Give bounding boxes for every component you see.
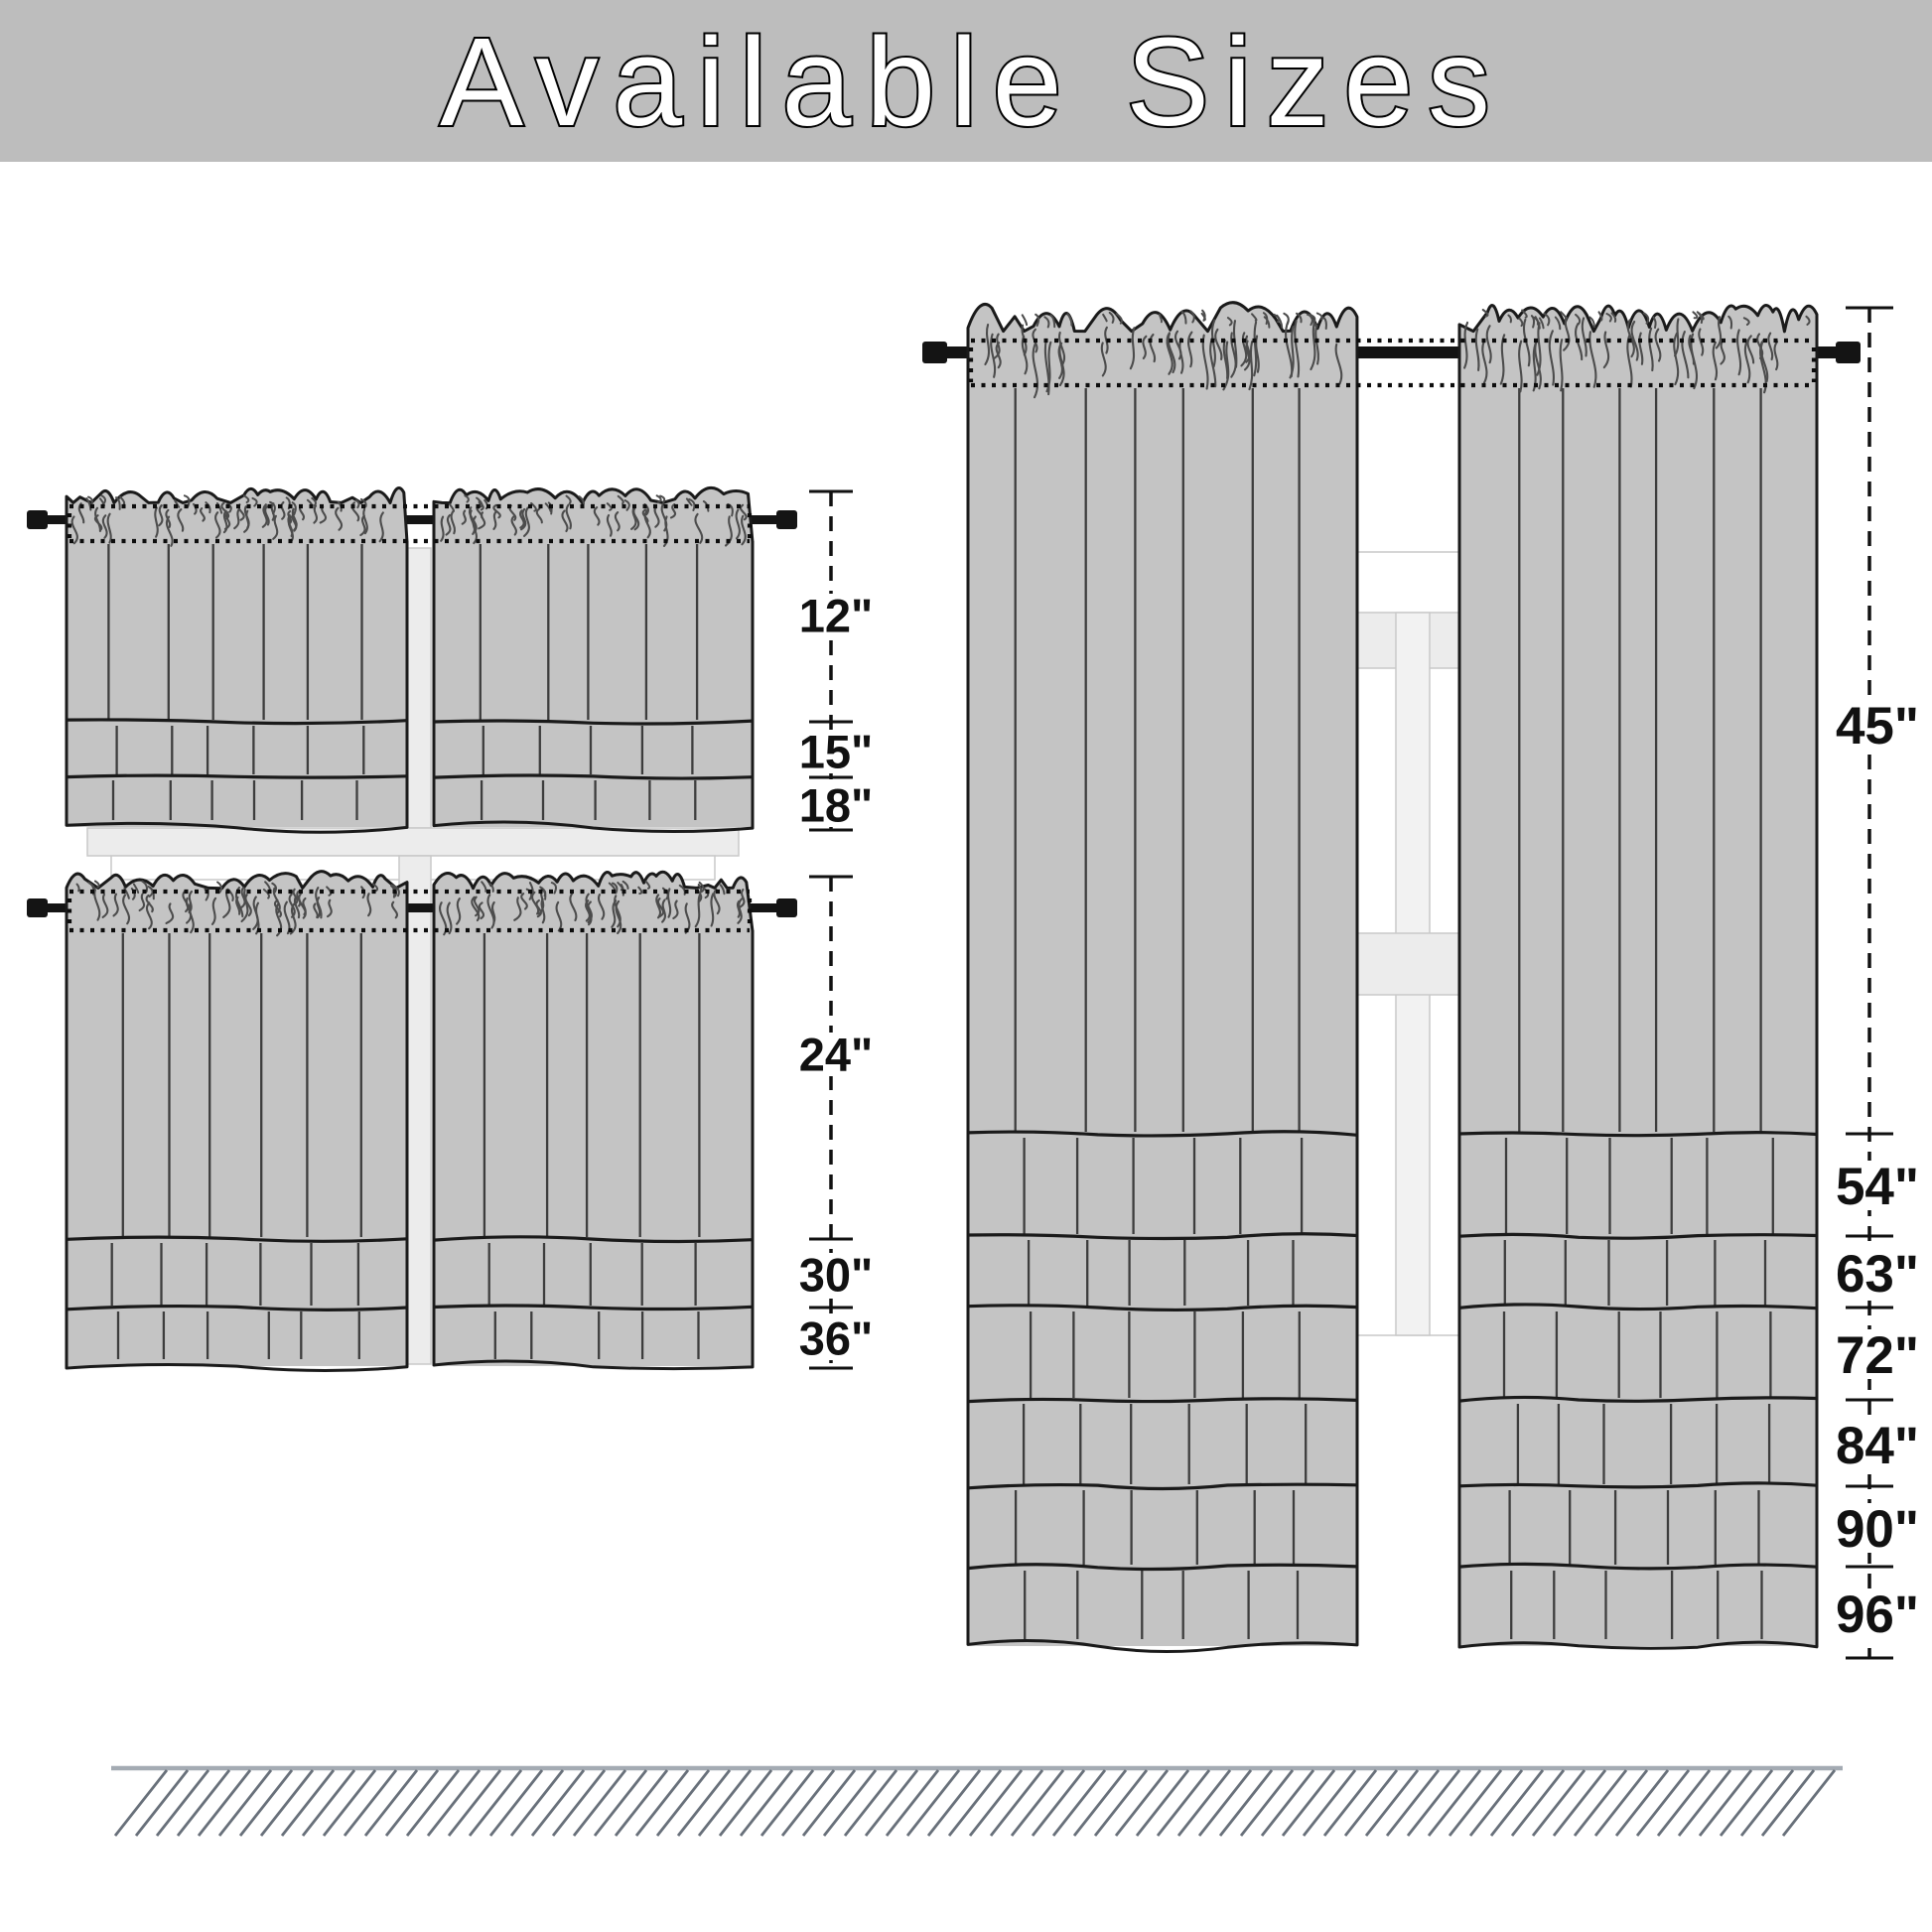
size-chart-page: Available Sizes 12"15"18"24"30"36"45"54"… — [0, 0, 1932, 1932]
size-label: 45" — [1836, 697, 1919, 756]
rod-finial — [1836, 342, 1861, 363]
window-frame-right — [1352, 552, 1467, 1335]
rod-pocket-ruffle — [434, 487, 753, 546]
size-label: 84" — [1836, 1417, 1919, 1475]
curtain-panel — [1459, 306, 1817, 1649]
size-label: 18" — [799, 779, 874, 832]
size-label: 12" — [799, 590, 874, 642]
rod-bar — [751, 517, 778, 524]
size-label: 36" — [799, 1312, 874, 1365]
curtain-panel — [968, 303, 1357, 1652]
curtain-panel — [67, 872, 407, 1371]
rod-finial — [27, 510, 48, 529]
size-label: 24" — [799, 1029, 874, 1081]
rod-finial — [776, 898, 797, 917]
rod-finial — [27, 898, 48, 917]
rod-pocket-ruffle — [434, 872, 753, 934]
panel-body — [434, 928, 753, 1366]
size-label: 15" — [799, 726, 874, 778]
rod-bar — [751, 905, 778, 912]
size-label: 63" — [1836, 1245, 1919, 1304]
curtain-panels — [67, 303, 1817, 1652]
rod-pocket-ruffle — [968, 303, 1357, 398]
rod-pocket-ruffle — [67, 487, 407, 545]
floor-hatch — [111, 1768, 1843, 1836]
window-frame-part — [1352, 933, 1467, 995]
size-label: 30" — [799, 1249, 874, 1302]
size-label: 54" — [1836, 1158, 1919, 1216]
curtain-panel — [434, 872, 753, 1368]
rod-bar — [1817, 348, 1839, 356]
rod-finial — [922, 342, 947, 363]
panel-body — [1459, 383, 1817, 1646]
size-label: 96" — [1836, 1586, 1919, 1644]
size-label: 90" — [1836, 1500, 1919, 1559]
rod-finial — [776, 510, 797, 529]
size-label: 72" — [1836, 1326, 1919, 1385]
diagram-canvas: Available Sizes 12"15"18"24"30"36"45"54"… — [0, 0, 1932, 1932]
rod-pocket-ruffle — [67, 872, 407, 936]
measure-column-left-bottom: 24"30"36" — [794, 877, 878, 1368]
measure-column-right: 45"54"63"72"84"90"96" — [1830, 308, 1925, 1658]
panel-body — [67, 928, 407, 1366]
hem-line — [67, 775, 407, 777]
measure-column-left-top: 12"15"18" — [794, 491, 878, 832]
rod-pocket-ruffle — [1459, 306, 1817, 393]
